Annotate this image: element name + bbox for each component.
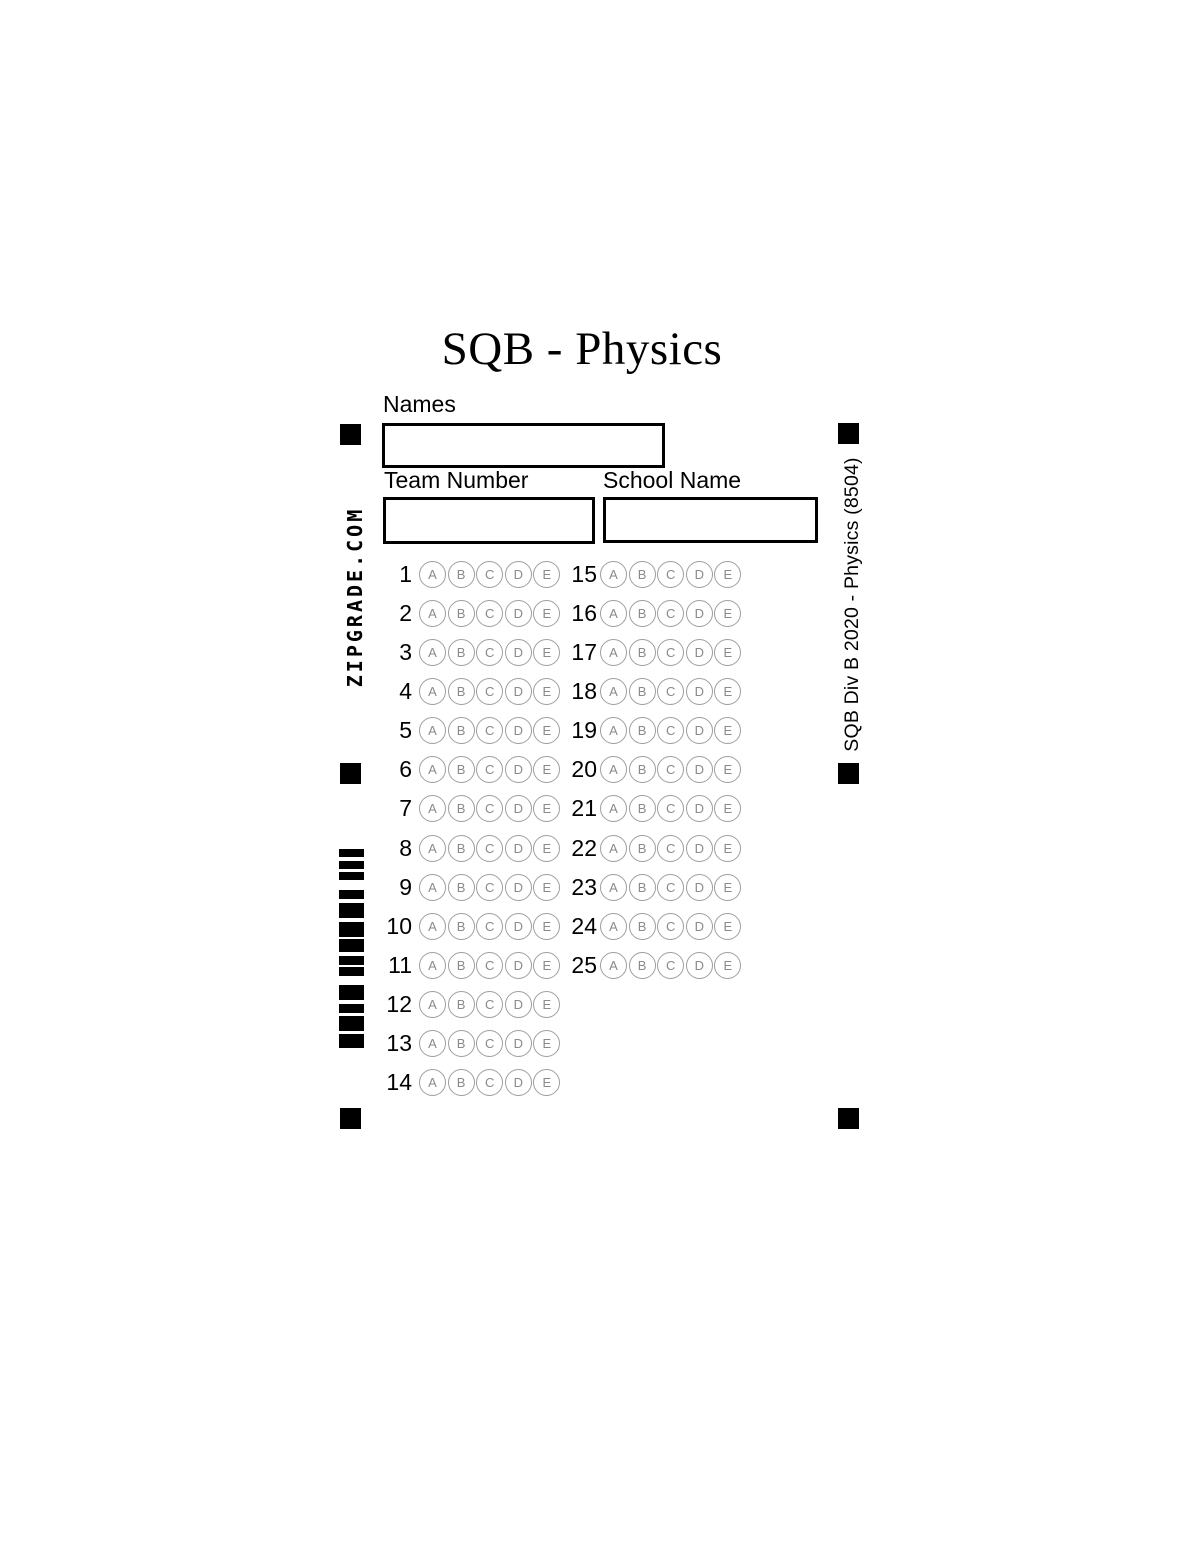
bubble-q16-d[interactable]: D [686,600,713,627]
bubble-q11-c[interactable]: C [476,952,503,979]
bubble-q19-b[interactable]: B [629,717,656,744]
bubble-q1-e[interactable]: E [533,561,560,588]
bubble-q9-c[interactable]: C [476,874,503,901]
question-row-1: 1ABCDE [380,555,562,593]
question-row-21: 21ABCDE [560,790,743,828]
barcode-bar-11 [339,1004,364,1013]
bubble-q8-d[interactable]: D [505,835,532,862]
bubble-q19-a[interactable]: A [600,717,627,744]
bubble-q6-b[interactable]: B [448,756,475,783]
registration-mark-mid-left [340,763,361,784]
bubble-q23-d[interactable]: D [686,874,713,901]
question-row-15: 15ABCDE [560,555,743,593]
bubble-q15-c[interactable]: C [657,561,684,588]
barcode-bar-5 [339,903,364,918]
barcode-bar-8 [339,956,364,965]
bubble-q8-c[interactable]: C [476,835,503,862]
registration-mark-top-left [340,424,361,445]
bubble-q6-e[interactable]: E [533,756,560,783]
bubble-q16-e[interactable]: E [714,600,741,627]
bubble-q6-c[interactable]: C [476,756,503,783]
barcode-bar-2 [339,861,364,869]
bubble-q24-c[interactable]: C [657,913,684,940]
bubble-q20-a[interactable]: A [600,756,627,783]
question-row-2: 2ABCDE [380,594,562,632]
bubble-q13-e[interactable]: E [533,1030,560,1057]
barcode-bar-1 [339,849,364,857]
question-number-2: 2 [380,600,412,627]
bubble-q14-e[interactable]: E [533,1069,560,1096]
bubble-q3-e[interactable]: E [533,639,560,666]
question-number-13: 13 [380,1030,412,1057]
bubble-q11-a[interactable]: A [419,952,446,979]
question-number-22: 22 [560,835,597,862]
bubble-q1-b[interactable]: B [448,561,475,588]
bubble-q21-b[interactable]: B [629,795,656,822]
team-number-label: Team Number [384,467,528,493]
bubble-q2-d[interactable]: D [505,600,532,627]
bubble-q14-a[interactable]: A [419,1069,446,1096]
bubble-q20-c[interactable]: C [657,756,684,783]
bubble-q1-c[interactable]: C [476,561,503,588]
barcode-bar-12 [339,1016,364,1031]
bubble-q3-c[interactable]: C [476,639,503,666]
team-number-input-box[interactable] [383,497,595,544]
bubble-q24-a[interactable]: A [600,913,627,940]
question-number-11: 11 [380,952,412,979]
question-number-21: 21 [560,795,597,822]
registration-mark-bottom-right [838,1108,859,1129]
bubble-q20-d[interactable]: D [686,756,713,783]
bubble-q16-c[interactable]: C [657,600,684,627]
bubble-q22-e[interactable]: E [714,835,741,862]
answer-sheet: SQB - Physics Names Team Number School N… [0,0,1200,1553]
barcode-bar-7 [339,939,364,952]
zipgrade-logo-text: ZIPGRADE.COM [343,499,367,695]
question-number-19: 19 [560,717,597,744]
question-row-11: 11ABCDE [380,947,562,985]
bubble-q5-c[interactable]: C [476,717,503,744]
bubble-q8-b[interactable]: B [448,835,475,862]
bubble-q19-e[interactable]: E [714,717,741,744]
bubble-q11-e[interactable]: E [533,952,560,979]
page-title: SQB - Physics [340,322,824,376]
bubble-q21-c[interactable]: C [657,795,684,822]
bubble-q3-a[interactable]: A [419,639,446,666]
bubble-q16-b[interactable]: B [629,600,656,627]
bubble-q10-e[interactable]: E [533,913,560,940]
question-row-8: 8ABCDE [380,829,562,867]
question-number-9: 9 [380,874,412,901]
bubble-q5-a[interactable]: A [419,717,446,744]
question-row-12: 12ABCDE [380,986,562,1024]
bubble-q7-b[interactable]: B [448,795,475,822]
question-number-7: 7 [380,795,412,822]
school-name-label: School Name [603,467,741,493]
question-number-15: 15 [560,561,597,588]
bubble-q4-d[interactable]: D [505,678,532,705]
bubble-q24-d[interactable]: D [686,913,713,940]
bubble-q10-b[interactable]: B [448,913,475,940]
barcode-bar-9 [339,967,364,976]
bubble-q12-a[interactable]: A [419,991,446,1018]
bubble-q13-d[interactable]: D [505,1030,532,1057]
bubble-q21-d[interactable]: D [686,795,713,822]
question-number-6: 6 [380,756,412,783]
barcode-bar-10 [339,985,364,1000]
bubble-q11-b[interactable]: B [448,952,475,979]
bubble-q14-b[interactable]: B [448,1069,475,1096]
bubble-q22-d[interactable]: D [686,835,713,862]
bubble-q13-b[interactable]: B [448,1030,475,1057]
bubble-q10-d[interactable]: D [505,913,532,940]
question-number-16: 16 [560,600,597,627]
bubble-q12-c[interactable]: C [476,991,503,1018]
question-row-19: 19ABCDE [560,712,743,750]
bubble-q12-b[interactable]: B [448,991,475,1018]
bubble-q4-b[interactable]: B [448,678,475,705]
question-number-18: 18 [560,678,597,705]
bubble-q2-a[interactable]: A [419,600,446,627]
bubble-q5-b[interactable]: B [448,717,475,744]
question-row-20: 20ABCDE [560,751,743,789]
bubble-q9-b[interactable]: B [448,874,475,901]
bubble-q13-a[interactable]: A [419,1030,446,1057]
bubble-q22-a[interactable]: A [600,835,627,862]
question-number-24: 24 [560,913,597,940]
question-row-14: 14ABCDE [380,1064,562,1102]
question-number-14: 14 [380,1069,412,1096]
bubble-q25-b[interactable]: B [629,952,656,979]
bubble-q3-b[interactable]: B [448,639,475,666]
bubble-q14-d[interactable]: D [505,1069,532,1096]
question-row-18: 18ABCDE [560,672,743,710]
bubble-q4-e[interactable]: E [533,678,560,705]
bubble-q3-d[interactable]: D [505,639,532,666]
bubble-q25-c[interactable]: C [657,952,684,979]
bubble-q18-c[interactable]: C [657,678,684,705]
bubble-q7-d[interactable]: D [505,795,532,822]
names-label: Names [383,391,456,417]
bubble-q19-c[interactable]: C [657,717,684,744]
bubble-q15-d[interactable]: D [686,561,713,588]
question-row-10: 10ABCDE [380,907,562,945]
bubble-q5-d[interactable]: D [505,717,532,744]
bubble-q23-b[interactable]: B [629,874,656,901]
question-number-10: 10 [380,913,412,940]
bubble-q18-e[interactable]: E [714,678,741,705]
bubble-q20-e[interactable]: E [714,756,741,783]
bubble-q12-e[interactable]: E [533,991,560,1018]
bubble-q19-d[interactable]: D [686,717,713,744]
bubble-q17-a[interactable]: A [600,639,627,666]
bubble-q25-a[interactable]: A [600,952,627,979]
bubble-q17-c[interactable]: C [657,639,684,666]
bubble-q10-a[interactable]: A [419,913,446,940]
question-row-25: 25ABCDE [560,947,743,985]
bubble-q7-a[interactable]: A [419,795,446,822]
question-number-12: 12 [380,991,412,1018]
question-number-4: 4 [380,678,412,705]
question-number-8: 8 [380,835,412,862]
bubble-q5-e[interactable]: E [533,717,560,744]
bubble-q9-d[interactable]: D [505,874,532,901]
bubble-q1-d[interactable]: D [505,561,532,588]
bubble-q6-d[interactable]: D [505,756,532,783]
bubble-q2-b[interactable]: B [448,600,475,627]
bubble-q1-a[interactable]: A [419,561,446,588]
bubble-q21-e[interactable]: E [714,795,741,822]
question-row-7: 7ABCDE [380,790,562,828]
question-row-23: 23ABCDE [560,868,743,906]
bubble-q7-c[interactable]: C [476,795,503,822]
bubble-q15-e[interactable]: E [714,561,741,588]
barcode-bar-13 [339,1034,364,1048]
bubble-q9-e[interactable]: E [533,874,560,901]
bubble-q17-d[interactable]: D [686,639,713,666]
bubble-q17-b[interactable]: B [629,639,656,666]
question-row-3: 3ABCDE [380,633,562,671]
barcode-bar-6 [339,922,364,937]
bubble-q21-a[interactable]: A [600,795,627,822]
bubble-q11-d[interactable]: D [505,952,532,979]
bubble-q18-d[interactable]: D [686,678,713,705]
question-number-1: 1 [380,561,412,588]
question-row-4: 4ABCDE [380,672,562,710]
question-row-17: 17ABCDE [560,633,743,671]
bubble-q8-a[interactable]: A [419,835,446,862]
question-row-6: 6ABCDE [380,751,562,789]
registration-mark-mid-right [838,763,859,784]
bubble-q17-e[interactable]: E [714,639,741,666]
names-input-box[interactable] [382,423,665,468]
bubble-q20-b[interactable]: B [629,756,656,783]
school-name-input-box[interactable] [603,497,818,543]
question-row-16: 16ABCDE [560,594,743,632]
bubble-q14-c[interactable]: C [476,1069,503,1096]
question-row-9: 9ABCDE [380,868,562,906]
bubble-q24-b[interactable]: B [629,913,656,940]
question-number-25: 25 [560,952,597,979]
bubble-q22-b[interactable]: B [629,835,656,862]
registration-mark-top-right [838,423,859,444]
bubble-q23-e[interactable]: E [714,874,741,901]
question-row-5: 5ABCDE [380,712,562,750]
bubble-q4-a[interactable]: A [419,678,446,705]
question-row-22: 22ABCDE [560,829,743,867]
bubble-q18-b[interactable]: B [629,678,656,705]
bubble-q2-e[interactable]: E [533,600,560,627]
form-id-text: SQB Div B 2020 - Physics (8504) [841,456,864,753]
barcode-bar-3 [339,872,364,880]
bubble-q4-c[interactable]: C [476,678,503,705]
bubble-q24-e[interactable]: E [714,913,741,940]
bubble-q23-a[interactable]: A [600,874,627,901]
question-number-3: 3 [380,639,412,666]
bubble-q12-d[interactable]: D [505,991,532,1018]
bubble-q25-d[interactable]: D [686,952,713,979]
bubble-q15-a[interactable]: A [600,561,627,588]
bubble-q25-e[interactable]: E [714,952,741,979]
bubble-q8-e[interactable]: E [533,835,560,862]
bubble-q15-b[interactable]: B [629,561,656,588]
bubble-q2-c[interactable]: C [476,600,503,627]
bubble-q16-a[interactable]: A [600,600,627,627]
question-number-5: 5 [380,717,412,744]
question-number-17: 17 [560,639,597,666]
bubble-q23-c[interactable]: C [657,874,684,901]
question-number-23: 23 [560,874,597,901]
registration-mark-bottom-left [340,1108,361,1129]
bubble-q9-a[interactable]: A [419,874,446,901]
barcode-bar-4 [339,890,364,899]
question-row-13: 13ABCDE [380,1025,562,1063]
bubble-q7-e[interactable]: E [533,795,560,822]
bubble-q18-a[interactable]: A [600,678,627,705]
question-number-20: 20 [560,756,597,783]
bubble-q10-c[interactable]: C [476,913,503,940]
bubble-q22-c[interactable]: C [657,835,684,862]
question-row-24: 24ABCDE [560,907,743,945]
bubble-q6-a[interactable]: A [419,756,446,783]
bubble-q13-c[interactable]: C [476,1030,503,1057]
